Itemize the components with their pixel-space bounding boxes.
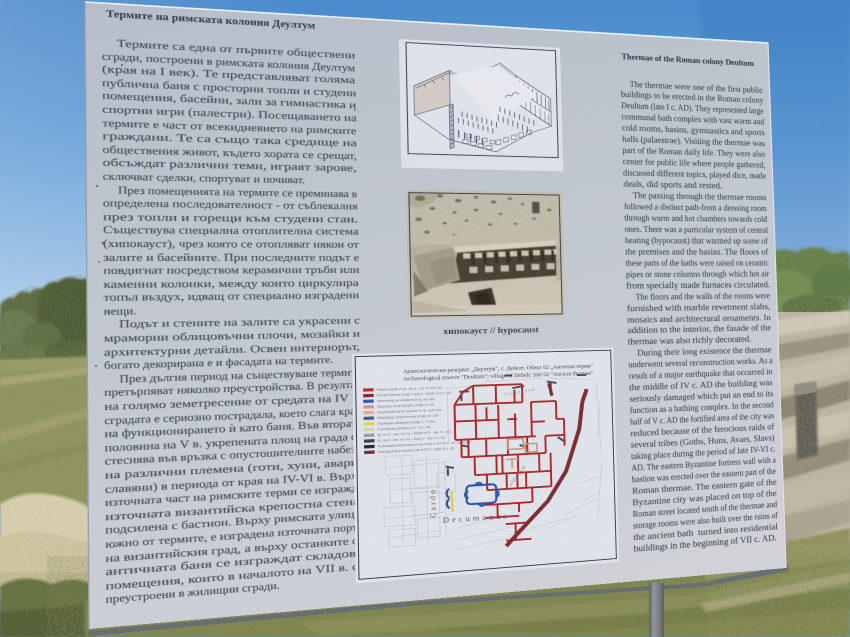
svg-text:Cardo: Cardo <box>428 488 438 519</box>
